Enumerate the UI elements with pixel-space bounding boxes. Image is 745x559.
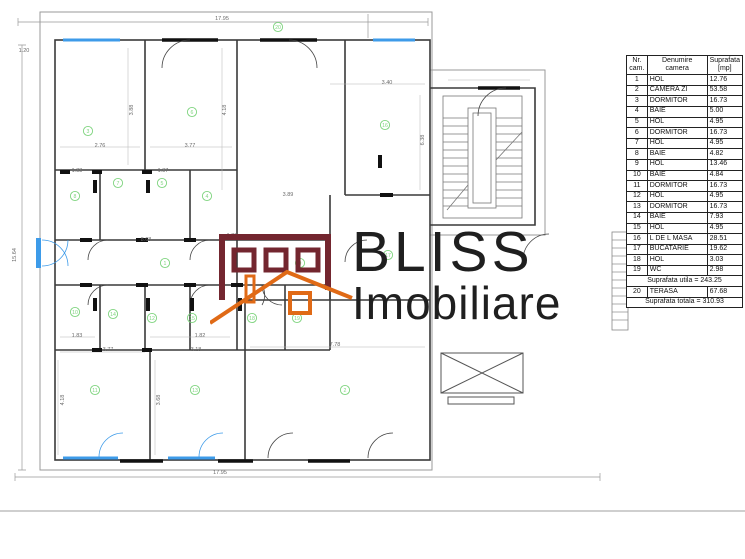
- svg-text:11: 11: [92, 388, 97, 394]
- svg-text:8.68: 8.68: [141, 237, 152, 243]
- table-row: 14BAIE7.93: [627, 212, 743, 223]
- svg-text:16: 16: [382, 123, 388, 129]
- col-header-denumire: Denumire camera: [647, 56, 707, 75]
- svg-text:7.78: 7.78: [330, 342, 341, 348]
- table-row: 13DORMITOR16.73: [627, 202, 743, 213]
- svg-text:1.82: 1.82: [195, 333, 206, 339]
- table-row: 12HOL4.95: [627, 191, 743, 202]
- svg-text:1: 1: [164, 261, 167, 267]
- table-row: 11DORMITOR16.73: [627, 181, 743, 192]
- table-row: 3DORMITOR16.73: [627, 96, 743, 107]
- logo-house-icon: [210, 226, 355, 338]
- terasa-row: 20TERASA67.68: [627, 287, 743, 298]
- svg-text:13: 13: [192, 388, 198, 394]
- svg-text:20: 20: [275, 25, 281, 31]
- svg-text:6: 6: [191, 110, 194, 116]
- svg-text:1.20: 1.20: [19, 48, 30, 54]
- table-row: 7HOL4.95: [627, 138, 743, 149]
- table-row: 10BAIE4.84: [627, 170, 743, 181]
- svg-text:3.77: 3.77: [103, 347, 114, 353]
- svg-text:1.83: 1.83: [72, 333, 83, 339]
- svg-text:1.83: 1.83: [72, 168, 83, 174]
- total-row: Suprafata totala = 310.93: [627, 297, 743, 308]
- subtotal-row: Suprafata utila = 243.25: [627, 276, 743, 287]
- elevator-box: [441, 353, 523, 404]
- table-row: 8BAIE4.82: [627, 149, 743, 160]
- svg-text:8: 8: [74, 194, 77, 200]
- table-row: 17BUCATARIE19.62: [627, 244, 743, 255]
- svg-text:17.95: 17.95: [213, 470, 227, 476]
- col-header-suprafata: Suprafata [mp]: [707, 56, 742, 75]
- svg-text:5: 5: [161, 181, 164, 187]
- col-header-nr: Nr. cam.: [627, 56, 648, 75]
- table-row: 15HOL4.95: [627, 223, 743, 234]
- svg-text:15: 15: [189, 316, 195, 322]
- table-header-row: Nr. cam. Denumire camera Suprafata [mp]: [627, 56, 743, 75]
- svg-text:3.88: 3.88: [129, 105, 135, 116]
- svg-text:6.38: 6.38: [420, 135, 426, 146]
- table-row: 18HOL3.03: [627, 255, 743, 266]
- svg-text:3.89: 3.89: [283, 192, 294, 198]
- logo-subtitle: Imobiliare: [352, 280, 561, 326]
- svg-text:4.18: 4.18: [60, 395, 66, 406]
- logo-text: BLISS Imobiliare: [352, 224, 561, 326]
- table-row: 4BAIE5.00: [627, 106, 743, 117]
- svg-text:7: 7: [117, 181, 120, 187]
- table-row: 6DORMITOR16.73: [627, 128, 743, 139]
- page-divider: [0, 510, 745, 512]
- logo-wordmark: BLISS: [352, 224, 561, 280]
- svg-text:3.68: 3.68: [156, 395, 162, 406]
- scanned-floorplan-page: 2036168754191014121518191711132 17.951.2…: [0, 0, 745, 559]
- svg-text:15.64: 15.64: [12, 248, 18, 262]
- bliss-imobiliare-logo: BLISS Imobiliare: [210, 226, 550, 338]
- svg-text:4: 4: [206, 194, 209, 200]
- room-area-table: Nr. cam. Denumire camera Suprafata [mp] …: [626, 55, 743, 308]
- svg-text:3.77: 3.77: [185, 143, 196, 149]
- staircase: [443, 96, 522, 218]
- table-row: 5HOL4.95: [627, 117, 743, 128]
- svg-text:2.76: 2.76: [95, 143, 106, 149]
- svg-text:12: 12: [149, 316, 155, 322]
- svg-text:10: 10: [72, 310, 78, 316]
- table-row: 16L DE L MASA28.51: [627, 234, 743, 245]
- svg-text:4.18: 4.18: [222, 105, 228, 116]
- svg-text:14: 14: [110, 312, 116, 318]
- svg-text:2: 2: [344, 388, 347, 394]
- table-row: 1HOL12.76: [627, 75, 743, 86]
- svg-text:3: 3: [87, 129, 90, 135]
- svg-text:1.87: 1.87: [158, 168, 169, 174]
- svg-text:17.95: 17.95: [215, 16, 229, 22]
- table-row: 19WC2.98: [627, 265, 743, 276]
- svg-text:3.18: 3.18: [191, 347, 202, 353]
- svg-text:3.40: 3.40: [382, 80, 393, 86]
- table-row: 2CAMERA ZI53.58: [627, 85, 743, 96]
- table-row: 9HOL13.46: [627, 159, 743, 170]
